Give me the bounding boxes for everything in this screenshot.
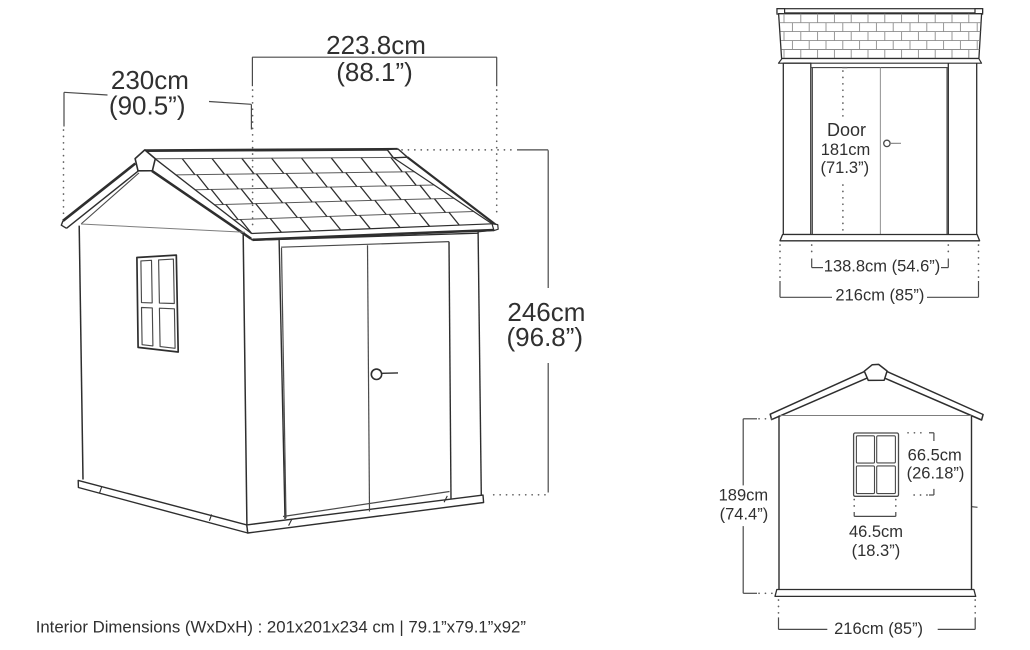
svg-text:(18.3”): (18.3”) [852,542,901,560]
svg-text:Door: Door [827,120,866,140]
svg-text:(88.1”): (88.1”) [336,57,413,87]
svg-text:(26.18”): (26.18”) [907,465,965,483]
svg-text:(96.8”): (96.8”) [507,322,584,352]
svg-text:(74.4”): (74.4”) [720,506,769,524]
svg-text:138.8cm (54.6”): 138.8cm (54.6”) [824,258,940,276]
svg-text:Interior Dimensions (WxDxH) :: Interior Dimensions (WxDxH) : 201x201x23… [36,618,526,637]
svg-text:(71.3”): (71.3”) [820,159,869,177]
svg-text:(90.5”): (90.5”) [109,91,186,121]
svg-text:216cm (85”): 216cm (85”) [834,620,923,638]
svg-text:66.5cm: 66.5cm [908,447,962,465]
svg-text:46.5cm: 46.5cm [849,523,903,541]
svg-text:189cm: 189cm [719,487,769,505]
svg-text:181cm: 181cm [821,141,871,159]
svg-text:223.8cm: 223.8cm [326,30,426,60]
svg-text:216cm (85”): 216cm (85”) [835,287,924,305]
